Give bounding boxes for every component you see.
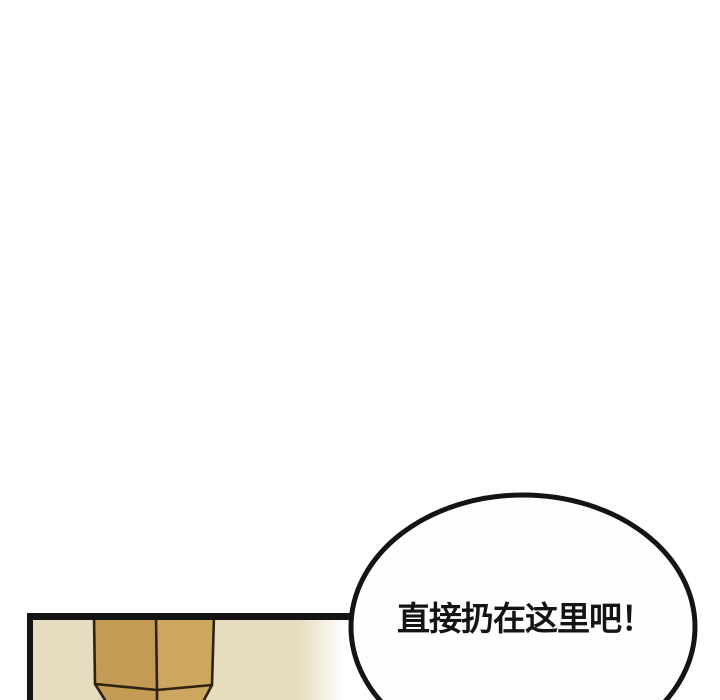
comic-page: 直接扔在这里吧！ [0,0,720,700]
speech-bubble: 直接扔在这里吧！ [351,495,695,700]
panel-border-top [27,613,358,620]
speech-bubble-shape [351,495,695,700]
panel-border-left [27,613,33,700]
bubble-text: 直接扔在这里吧！ [397,599,653,638]
room-panel [27,613,358,700]
comic-scene: 直接扔在这里吧！ [0,0,720,700]
cardboard-box [94,616,214,700]
